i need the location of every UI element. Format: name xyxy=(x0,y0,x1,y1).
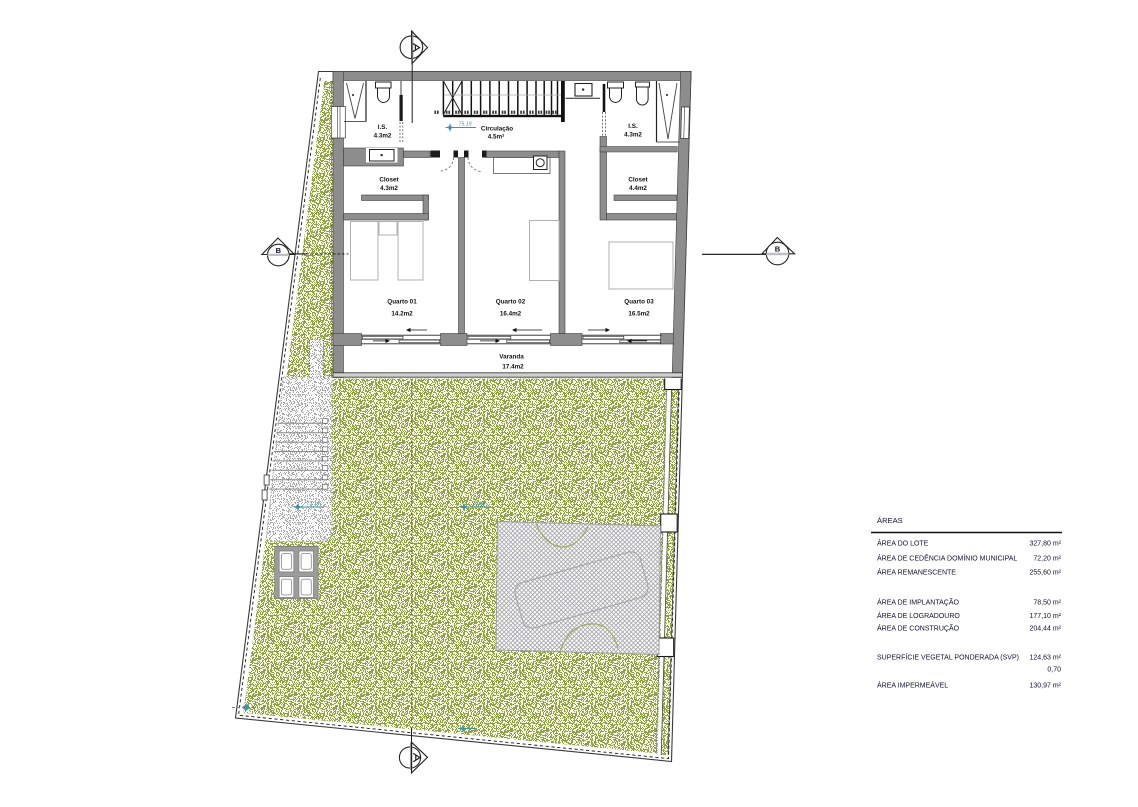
svg-text:4.4m2: 4.4m2 xyxy=(629,185,647,192)
svg-text:4.3m2: 4.3m2 xyxy=(380,185,398,192)
svg-text:4.3m2: 4.3m2 xyxy=(374,133,392,140)
svg-text:ÁREA DE IMPLANTAÇÃO: ÁREA DE IMPLANTAÇÃO xyxy=(877,598,960,607)
svg-text:ÁREA IMPERMEÁVEL: ÁREA IMPERMEÁVEL xyxy=(877,681,948,690)
svg-text:255,60 m²: 255,60 m² xyxy=(1029,570,1061,577)
svg-text:327,80 m²: 327,80 m² xyxy=(1029,541,1061,548)
svg-text:124,63 m²: 124,63 m² xyxy=(1029,655,1061,662)
svg-text:ÁREA DE CEDÊNCIA DOMÍNIO MUNIC: ÁREA DE CEDÊNCIA DOMÍNIO MUNICIPAL xyxy=(877,554,1017,563)
svg-text:0,70: 0,70 xyxy=(1047,667,1061,674)
svg-text:B: B xyxy=(276,246,282,255)
svg-text:14.2m2: 14.2m2 xyxy=(391,311,413,318)
svg-text:16.5m2: 16.5m2 xyxy=(628,311,650,318)
svg-text:177,10 m²: 177,10 m² xyxy=(1029,613,1061,620)
svg-text:16.4m2: 16.4m2 xyxy=(500,311,522,318)
svg-text:ÁREA REMANESCENTE: ÁREA REMANESCENTE xyxy=(877,568,956,577)
svg-text:Quarto 01: Quarto 01 xyxy=(387,299,417,306)
svg-text:ÁREA DE CONSTRUÇÃO: ÁREA DE CONSTRUÇÃO xyxy=(877,624,960,633)
svg-text:I.S.: I.S. xyxy=(628,123,638,130)
svg-text:Closet: Closet xyxy=(628,177,648,184)
svg-text:75.19: 75.19 xyxy=(459,122,472,128)
svg-text:B: B xyxy=(775,245,781,254)
svg-text:Quarto 03: Quarto 03 xyxy=(624,299,654,306)
svg-text:SUPERFÍCIE VEGETAL PONDERADA (: SUPERFÍCIE VEGETAL PONDERADA (SVP) xyxy=(877,653,1019,662)
svg-text:130,97 m²: 130,97 m² xyxy=(1029,683,1061,690)
svg-text:Quarto 02: Quarto 02 xyxy=(496,299,526,306)
svg-text:73.14: 73.14 xyxy=(307,501,320,507)
svg-text:204,44 m²: 204,44 m² xyxy=(1029,626,1061,633)
svg-text:4.3m2: 4.3m2 xyxy=(624,132,642,139)
svg-text:Circulação: Circulação xyxy=(481,126,513,133)
svg-text:72,20 m²: 72,20 m² xyxy=(1033,556,1061,563)
svg-text:4.5m²: 4.5m² xyxy=(488,134,504,141)
svg-text:I.S.: I.S. xyxy=(378,124,388,131)
svg-text:ÁREA DO LOTE: ÁREA DO LOTE xyxy=(877,539,929,548)
svg-text:78,50 m²: 78,50 m² xyxy=(1033,600,1061,607)
svg-text:Closet: Closet xyxy=(379,177,399,184)
svg-text:17.4m2: 17.4m2 xyxy=(502,364,524,371)
svg-text:73.04: 73.04 xyxy=(473,501,486,507)
svg-text:ÁREAS: ÁREAS xyxy=(877,516,903,525)
svg-text:ÁREA DE LOGRADOURO: ÁREA DE LOGRADOURO xyxy=(877,611,960,620)
svg-text:Varanda: Varanda xyxy=(499,354,524,361)
